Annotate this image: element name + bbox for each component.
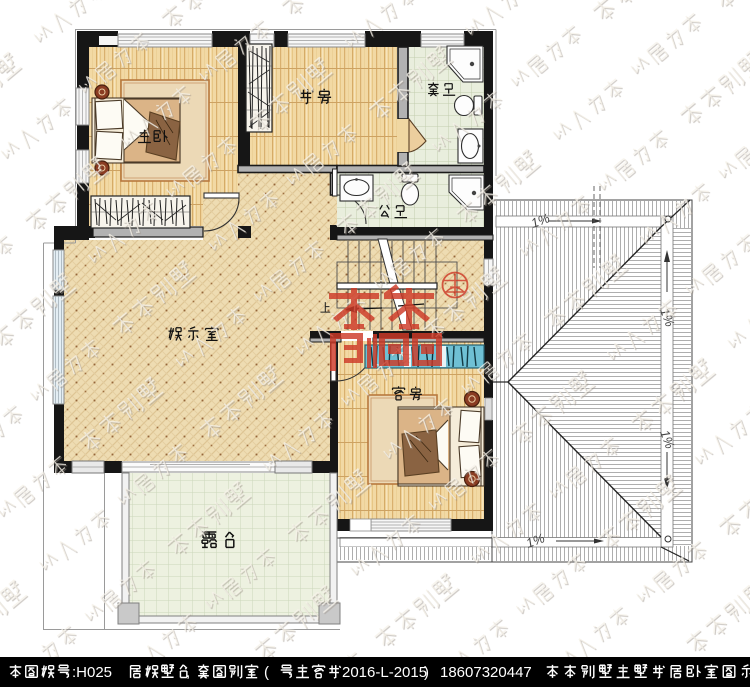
- svg-text::H025: :H025: [72, 664, 112, 681]
- svg-text:): ): [424, 664, 429, 681]
- svg-text:2016-L-2015: 2016-L-2015: [342, 664, 427, 681]
- svg-text:(: (: [264, 664, 269, 681]
- svg-text:18607320447: 18607320447: [440, 664, 532, 681]
- svg-text:,: ,: [186, 664, 190, 681]
